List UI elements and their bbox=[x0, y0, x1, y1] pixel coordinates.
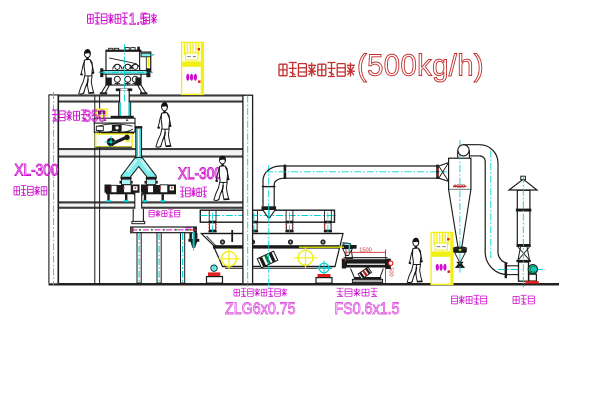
svg-text:FS0.6x1.5: FS0.6x1.5 bbox=[335, 300, 400, 318]
svg-text:#600: #600 bbox=[454, 184, 466, 190]
svg-text:ZLG6x0.75: ZLG6x0.75 bbox=[225, 300, 296, 318]
svg-text:350: 350 bbox=[84, 108, 105, 126]
svg-text:1500: 1500 bbox=[359, 248, 371, 254]
svg-text:(500kg/h): (500kg/h) bbox=[357, 49, 484, 83]
svg-text:1.5: 1.5 bbox=[129, 10, 148, 29]
svg-text:XL-300: XL-300 bbox=[15, 161, 59, 180]
svg-text:XL-300: XL-300 bbox=[178, 165, 222, 184]
